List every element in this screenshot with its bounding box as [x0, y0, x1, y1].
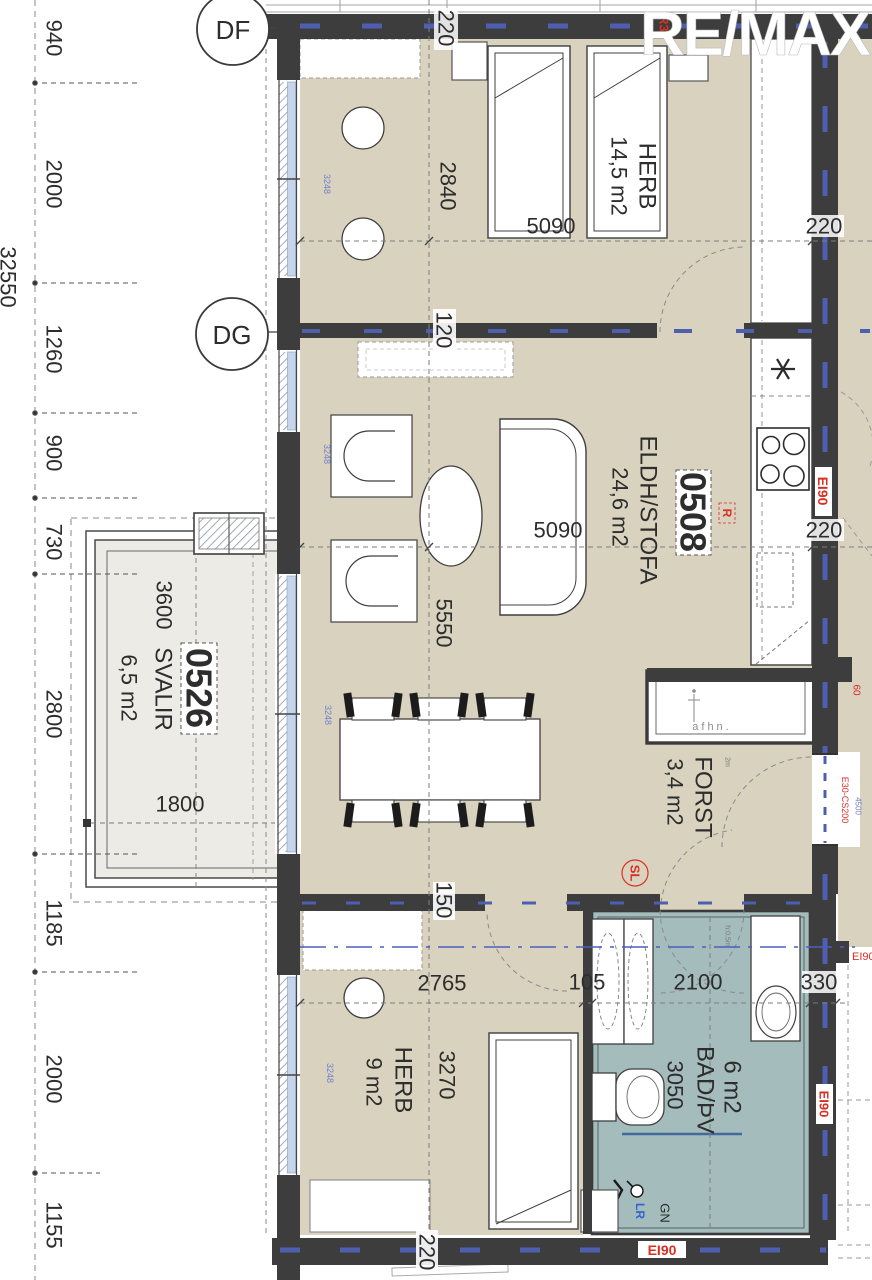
svg-text:2000: 2000: [42, 160, 67, 209]
svg-text:220: 220: [434, 10, 459, 47]
svg-text:2m: 2m: [724, 757, 731, 767]
svg-text:3248: 3248: [325, 1063, 335, 1083]
svg-text:150: 150: [432, 882, 457, 919]
svg-text:h:0.5m: h:0.5m: [724, 925, 731, 947]
svg-text:R: R: [720, 509, 734, 518]
svg-text:2000: 2000: [42, 1055, 67, 1104]
svg-text:1185: 1185: [42, 899, 67, 946]
svg-text:32550: 32550: [0, 246, 21, 307]
svg-text:FORST: FORST: [690, 756, 717, 838]
svg-text:900: 900: [42, 435, 67, 472]
svg-text:3,4 m2: 3,4 m2: [663, 758, 688, 825]
svg-text:BAD/ÞV: BAD/ÞV: [692, 1046, 719, 1134]
svg-text:3270: 3270: [435, 1051, 460, 1100]
svg-text:4500: 4500: [854, 797, 863, 815]
svg-text:14,5 m2: 14,5 m2: [607, 136, 632, 216]
svg-text:6 m2: 6 m2: [719, 1060, 746, 1113]
svg-text:2800: 2800: [42, 690, 67, 739]
svg-text:330: 330: [801, 970, 838, 995]
svg-text:0508: 0508: [673, 472, 714, 552]
svg-text:220: 220: [415, 1234, 440, 1271]
svg-text:3248: 3248: [322, 444, 332, 464]
svg-text:940: 940: [42, 20, 67, 57]
svg-text:105: 105: [569, 970, 606, 995]
svg-text:3600: 3600: [152, 581, 177, 630]
svg-text:SL: SL: [628, 865, 643, 882]
svg-text:120: 120: [432, 312, 457, 349]
svg-text:9 m2: 9 m2: [362, 1058, 387, 1107]
svg-text:6,5 m2: 6,5 m2: [117, 654, 142, 721]
svg-text:24,6 m2: 24,6 m2: [608, 467, 633, 547]
svg-text:1155: 1155: [42, 1201, 67, 1248]
svg-text:730: 730: [42, 524, 67, 561]
svg-text:SVALIR: SVALIR: [150, 647, 177, 731]
svg-text:220: 220: [806, 518, 843, 543]
svg-text:2840: 2840: [436, 162, 461, 211]
svg-text:GN: GN: [658, 1203, 673, 1223]
svg-text:2100: 2100: [674, 970, 723, 995]
svg-text:DF: DF: [216, 15, 251, 45]
svg-text:LR: LR: [633, 1203, 647, 1219]
svg-text:2765: 2765: [418, 971, 467, 996]
svg-text:EI90: EI90: [852, 951, 872, 963]
svg-text:DG: DG: [213, 320, 252, 350]
svg-text:RE/MAX: RE/MAX: [640, 0, 871, 69]
svg-text:afhn.: afhn.: [692, 721, 731, 733]
svg-text:0526: 0526: [179, 648, 220, 728]
svg-text:1260: 1260: [42, 325, 67, 374]
svg-text:E30-CS200: E30-CS200: [840, 777, 850, 824]
svg-text:5550: 5550: [432, 599, 457, 648]
svg-text:60: 60: [851, 684, 862, 696]
svg-text:5090: 5090: [534, 518, 583, 543]
svg-text:EI90: EI90: [817, 1091, 832, 1118]
svg-text:HERB: HERB: [390, 1047, 417, 1114]
svg-text:1800: 1800: [156, 792, 205, 817]
svg-text:220: 220: [806, 214, 843, 239]
svg-text:HERB: HERB: [634, 143, 661, 210]
svg-text:EI90: EI90: [648, 1242, 677, 1258]
svg-text:ELDH/STOFA: ELDH/STOFA: [635, 436, 662, 585]
svg-text:3248: 3248: [322, 174, 332, 194]
svg-text:3248: 3248: [323, 705, 333, 725]
svg-text:EI90: EI90: [815, 477, 831, 506]
svg-text:5090: 5090: [527, 214, 576, 239]
svg-text:3050: 3050: [663, 1061, 688, 1110]
